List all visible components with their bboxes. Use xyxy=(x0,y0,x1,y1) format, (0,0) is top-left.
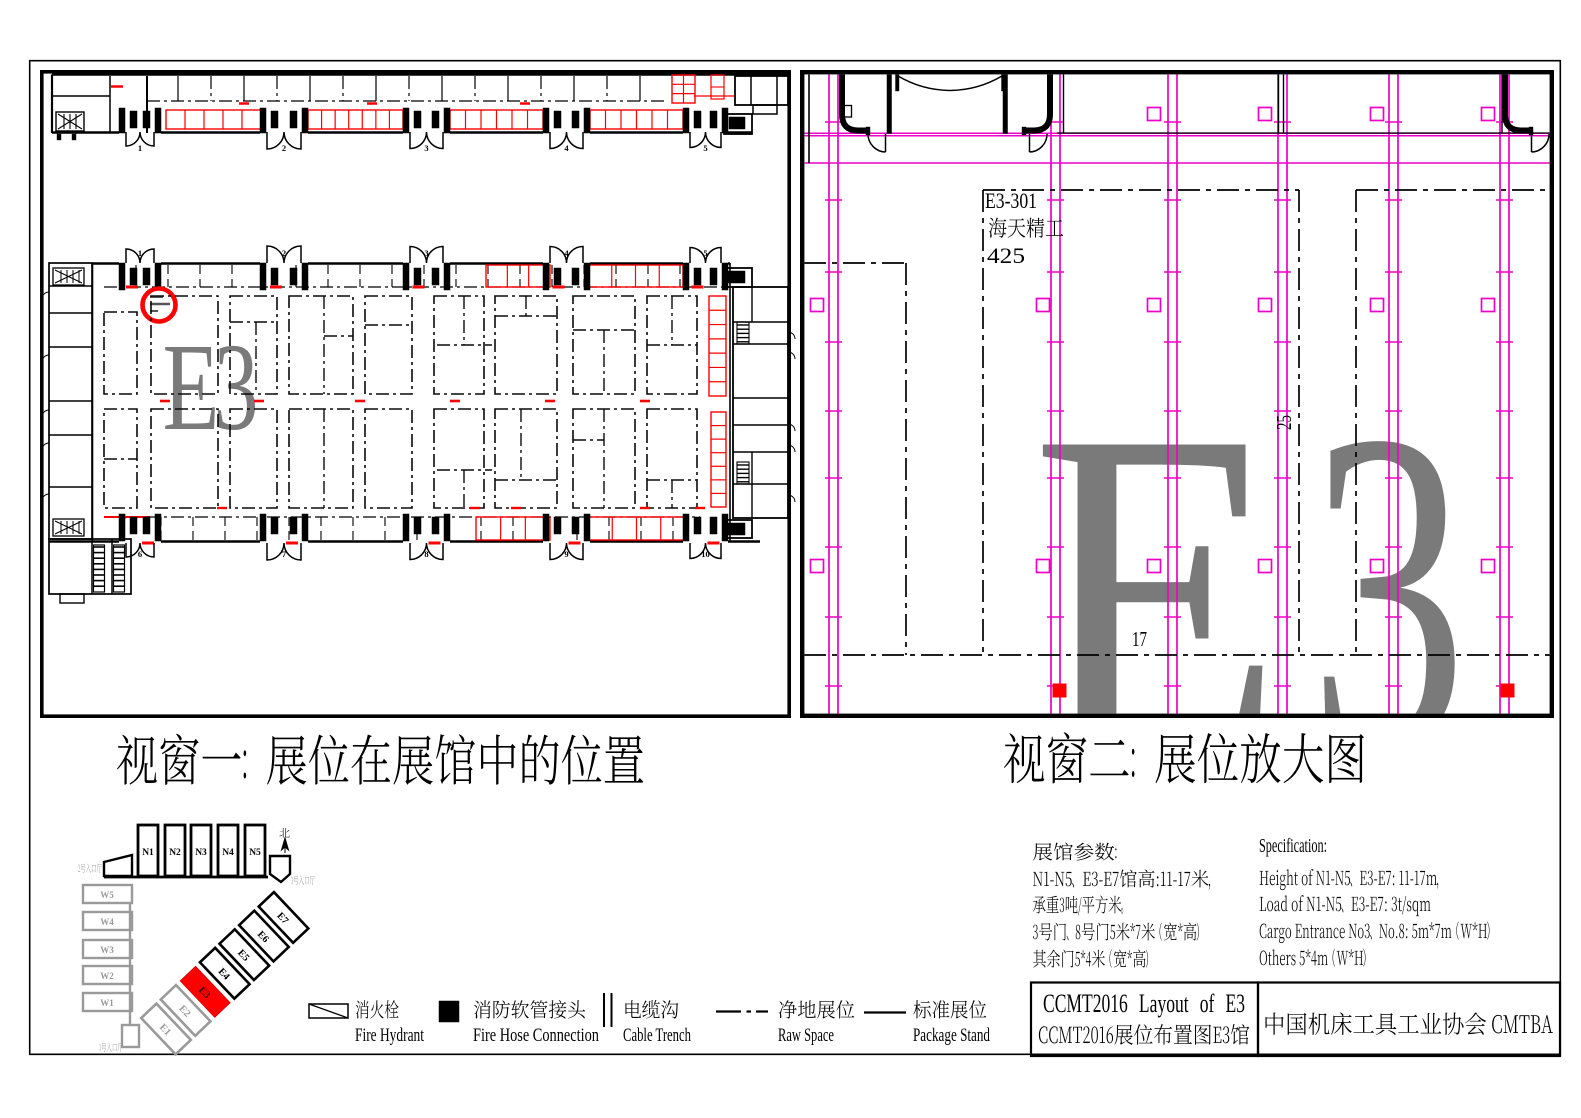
svg-text:1: 1 xyxy=(138,248,142,258)
svg-text:N3: N3 xyxy=(195,848,207,858)
svg-text:2: 2 xyxy=(282,143,286,153)
svg-text:9: 9 xyxy=(564,549,568,559)
svg-text:W4: W4 xyxy=(100,917,114,927)
svg-text:E: E xyxy=(163,319,220,457)
svg-text:W3: W3 xyxy=(100,945,114,955)
svg-text:10: 10 xyxy=(701,549,710,559)
svg-text:W1: W1 xyxy=(100,998,114,1008)
svg-text:N5: N5 xyxy=(249,848,261,858)
svg-text:Specification:: Specification: xyxy=(1259,835,1327,857)
svg-text:5: 5 xyxy=(703,248,707,258)
svg-text:25: 25 xyxy=(1272,415,1296,430)
svg-text:17: 17 xyxy=(1132,627,1147,651)
svg-text:N4: N4 xyxy=(222,848,234,858)
svg-text:E3-301: E3-301 xyxy=(985,188,1037,213)
svg-text:6: 6 xyxy=(138,549,142,559)
svg-text:W2: W2 xyxy=(100,971,114,981)
svg-text:8: 8 xyxy=(424,549,428,559)
svg-text:5: 5 xyxy=(703,143,707,153)
svg-text:Cable Trench: Cable Trench xyxy=(623,1025,691,1046)
svg-text:Fire Hydrant: Fire Hydrant xyxy=(355,1025,425,1046)
svg-text:2: 2 xyxy=(282,248,286,258)
svg-text:425: 425 xyxy=(987,243,1025,268)
svg-text:CCMT2016 Layout of E3: CCMT2016 Layout of E3 xyxy=(1043,989,1245,1018)
svg-text:1: 1 xyxy=(138,143,142,153)
svg-text:3: 3 xyxy=(424,143,428,153)
svg-text:3: 3 xyxy=(424,248,428,258)
svg-text:N2: N2 xyxy=(169,848,181,858)
svg-text:Raw Space: Raw Space xyxy=(778,1025,834,1046)
svg-text:Fire Hose Connection: Fire Hose Connection xyxy=(473,1025,599,1046)
svg-text:Package Stand: Package Stand xyxy=(913,1025,990,1046)
svg-text:3: 3 xyxy=(214,319,259,457)
svg-text:N1: N1 xyxy=(142,848,154,858)
svg-text:W5: W5 xyxy=(100,890,114,900)
